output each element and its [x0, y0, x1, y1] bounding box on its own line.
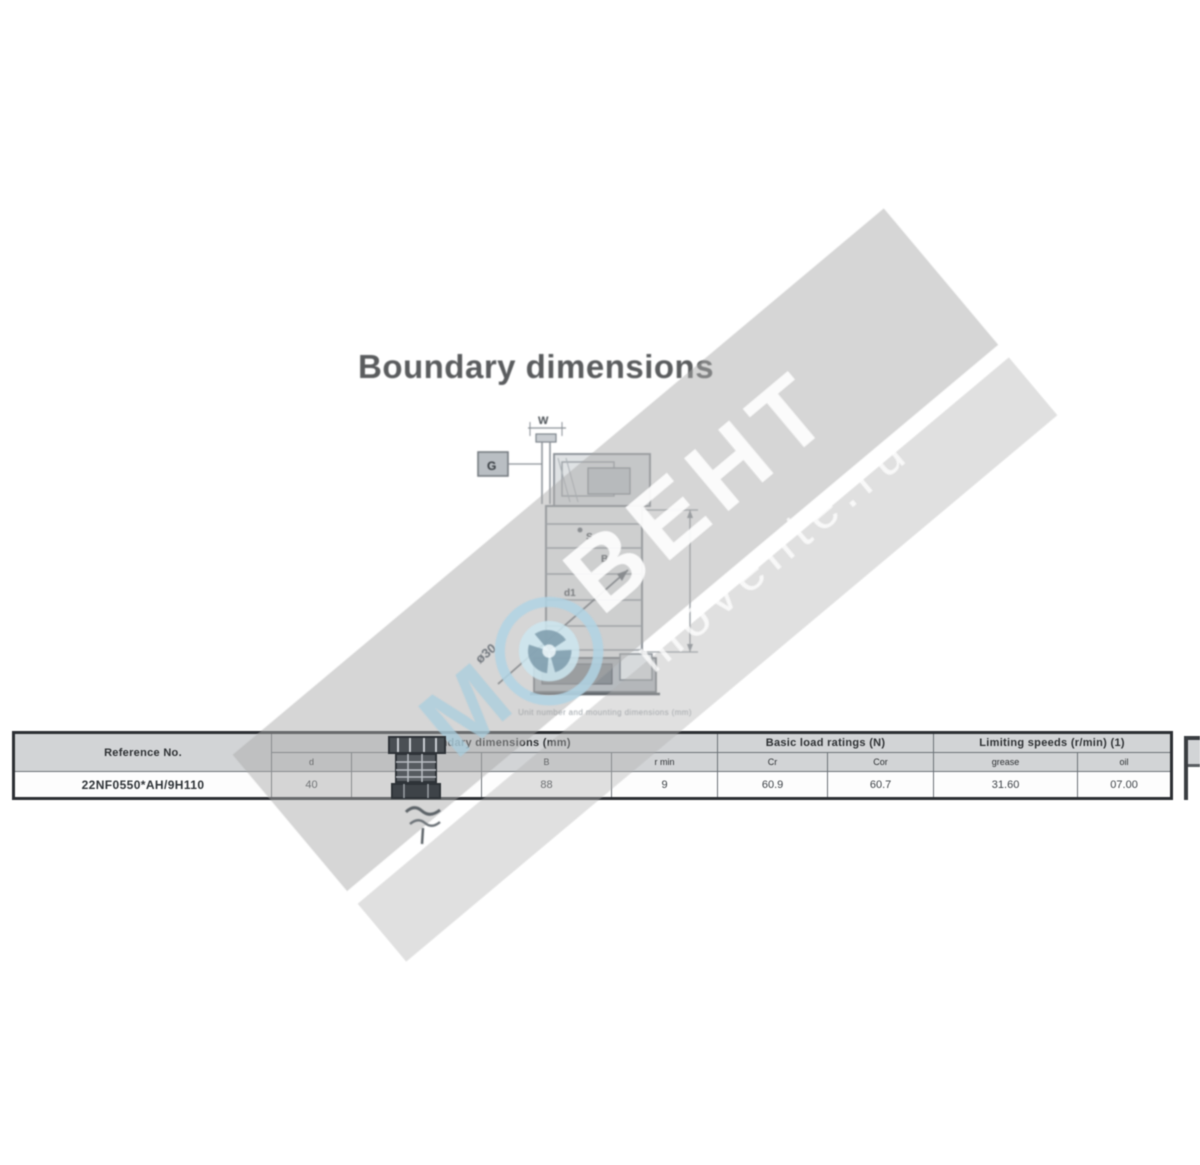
sub-header-oil: oil: [1078, 753, 1172, 772]
break-squiggle: [398, 800, 448, 848]
drawing-caption: Unit number and mounting dimensions (mm): [505, 708, 705, 717]
cell-B: 88: [482, 772, 612, 799]
cell-r: 9: [612, 772, 718, 799]
dim-label-g: G: [487, 459, 496, 473]
page-title: Boundary dimensions: [358, 348, 718, 386]
sub-header-cor: Cor: [828, 753, 934, 772]
set-screw: [536, 434, 556, 442]
sub-header-r: r min: [612, 753, 718, 772]
spec-table: Reference No. Boundary dimensions (mm) B…: [12, 731, 1173, 800]
dim-label-d1: d1: [564, 588, 576, 599]
dim-label-b: B: [601, 554, 608, 565]
cell-grease: 31.60: [934, 772, 1078, 799]
cell-cr: 60.9: [718, 772, 828, 799]
group-header-load: Basic load ratings (N): [718, 733, 934, 753]
bearing-drawing: W G S B d1: [470, 412, 730, 717]
table-row: 22NF0550*AH/9H110 40 88 9 60.9 60.7 31.6…: [14, 772, 1172, 799]
dim-label-w: W: [538, 415, 549, 427]
dim-label-bore: ø30: [472, 640, 499, 666]
sub-header-B: B: [482, 753, 612, 772]
sub-header-cr: Cr: [718, 753, 828, 772]
cell-oil: 07.00: [1078, 772, 1172, 799]
group-header-row: Reference No. Boundary dimensions (mm) B…: [14, 733, 1172, 753]
group-header-reference: Reference No.: [14, 733, 272, 772]
sub-header-grease: grease: [934, 753, 1078, 772]
cell-cor: 60.7: [828, 772, 934, 799]
group-header-speed: Limiting speeds (r/min) (1): [934, 733, 1172, 753]
cell-d: 40: [272, 772, 352, 799]
group-header-boundary: Boundary dimensions (mm): [272, 733, 718, 753]
catalog-page: Boundary dimensions W G S B d1: [0, 0, 1200, 1165]
adjacent-table-fragment: [1184, 736, 1200, 800]
dim-label-s: S: [586, 532, 593, 543]
sub-header-d: d: [272, 753, 352, 772]
mini-figure-stamp: [388, 736, 446, 800]
bearing-body: [546, 506, 642, 658]
cell-reference: 22NF0550*AH/9H110: [14, 772, 272, 799]
spec-table-wrap: Reference No. Boundary dimensions (mm) B…: [12, 731, 1173, 800]
